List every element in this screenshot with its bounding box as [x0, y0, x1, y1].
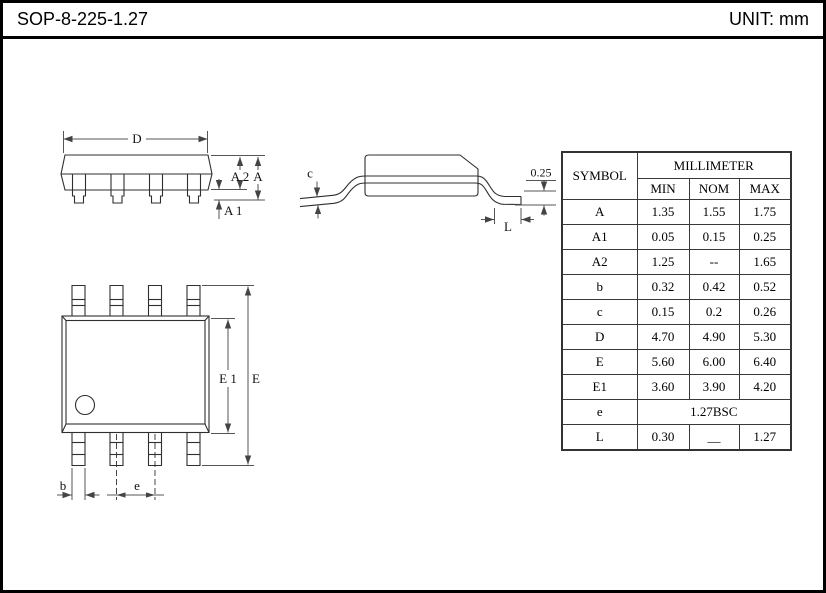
nom-cell: 0.2	[689, 300, 739, 325]
col-header-nom: NOM	[689, 179, 739, 200]
symbol-cell: E	[562, 350, 637, 375]
nom-cell: __	[689, 425, 739, 451]
table-row: e 1.27BSC	[562, 400, 791, 425]
pin1-indicator	[76, 396, 95, 415]
dim-label-offset: 0.25	[531, 166, 552, 180]
max-cell: 4.20	[739, 375, 791, 400]
end-view-drawing: c 0.25 L	[300, 155, 556, 234]
dim-label-A: A	[253, 169, 263, 184]
max-cell: 0.26	[739, 300, 791, 325]
dim-label-A2: A 2	[231, 169, 249, 184]
col-header-min: MIN	[637, 179, 689, 200]
col-header-symbol: SYMBOL	[562, 152, 637, 200]
table-row: E1 3.60 3.90 4.20	[562, 375, 791, 400]
nom-cell: 0.42	[689, 275, 739, 300]
min-cell: 3.60	[637, 375, 689, 400]
col-header-millimeter: MILLIMETER	[637, 152, 791, 179]
col-header-max: MAX	[739, 179, 791, 200]
span-cell: 1.27BSC	[637, 400, 791, 425]
table-row: A1 0.05 0.15 0.25	[562, 225, 791, 250]
nom-cell: 1.55	[689, 200, 739, 225]
dim-label-E1: E 1	[219, 371, 237, 386]
max-cell: 5.30	[739, 325, 791, 350]
symbol-cell: L	[562, 425, 637, 451]
symbol-cell: c	[562, 300, 637, 325]
min-cell: 0.05	[637, 225, 689, 250]
symbol-cell: E1	[562, 375, 637, 400]
dim-label-b: b	[60, 478, 67, 493]
max-cell: 1.75	[739, 200, 791, 225]
max-cell: 1.27	[739, 425, 791, 451]
side-view-drawing: D A 2 A A 1	[61, 131, 265, 219]
dim-label-A1: A 1	[224, 203, 242, 218]
dim-label-e: e	[134, 478, 140, 493]
nom-cell: 0.15	[689, 225, 739, 250]
table-row: b 0.32 0.42 0.52	[562, 275, 791, 300]
symbol-cell: b	[562, 275, 637, 300]
min-cell: 1.25	[637, 250, 689, 275]
symbol-cell: A	[562, 200, 637, 225]
nom-cell: 6.00	[689, 350, 739, 375]
min-cell: 4.70	[637, 325, 689, 350]
top-view-drawing: E 1 E b e	[57, 286, 260, 501]
table-row: D 4.70 4.90 5.30	[562, 325, 791, 350]
table-row: L 0.30 __ 1.27	[562, 425, 791, 451]
nom-cell: 4.90	[689, 325, 739, 350]
max-cell: 0.25	[739, 225, 791, 250]
dim-label-L: L	[504, 219, 512, 234]
table-row: E 5.60 6.00 6.40	[562, 350, 791, 375]
min-cell: 0.32	[637, 275, 689, 300]
table-row: c 0.15 0.2 0.26	[562, 300, 791, 325]
min-cell: 1.35	[637, 200, 689, 225]
symbol-cell: D	[562, 325, 637, 350]
dimension-table: SYMBOL MILLIMETER MIN NOM MAX A 1.35 1.5…	[561, 151, 792, 451]
table-row: A 1.35 1.55 1.75	[562, 200, 791, 225]
min-cell: 5.60	[637, 350, 689, 375]
max-cell: 0.52	[739, 275, 791, 300]
table-row: A2 1.25 -- 1.65	[562, 250, 791, 275]
min-cell: 0.30	[637, 425, 689, 451]
min-cell: 0.15	[637, 300, 689, 325]
max-cell: 1.65	[739, 250, 791, 275]
symbol-cell: A1	[562, 225, 637, 250]
symbol-cell: A2	[562, 250, 637, 275]
dim-label-c: c	[307, 166, 313, 181]
drawing-sheet: SOP-8-225-1.27 UNIT: mm D	[0, 0, 826, 593]
symbol-cell: e	[562, 400, 637, 425]
dim-label-E: E	[252, 371, 260, 386]
max-cell: 6.40	[739, 350, 791, 375]
nom-cell: --	[689, 250, 739, 275]
nom-cell: 3.90	[689, 375, 739, 400]
dim-label-D: D	[132, 131, 141, 146]
